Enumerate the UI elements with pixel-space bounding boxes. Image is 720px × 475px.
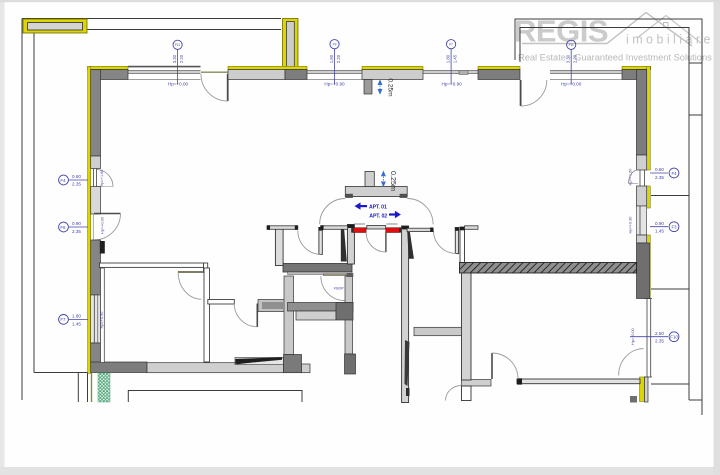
svg-text:2.20: 2.20 <box>336 54 341 63</box>
svg-text:F7: F7 <box>449 43 453 47</box>
svg-text:0.90: 0.90 <box>655 221 664 226</box>
svg-text:F10: F10 <box>670 335 678 340</box>
svg-text:FBOP: FBOP <box>334 287 344 291</box>
svg-text:1.80: 1.80 <box>329 54 334 63</box>
svg-text:Hp=+0.00: Hp=+0.00 <box>631 328 635 345</box>
svg-text:imobiliare: imobiliare <box>626 33 714 47</box>
svg-text:0.25m: 0.25m <box>389 171 398 191</box>
svg-text:3.30: 3.30 <box>172 54 177 63</box>
svg-text:1.80: 1.80 <box>446 54 451 63</box>
svg-text:2.50: 2.50 <box>655 331 664 336</box>
svg-text:F9: F9 <box>333 43 337 47</box>
svg-text:3.30: 3.30 <box>566 54 571 63</box>
svg-text:F3: F3 <box>671 225 677 230</box>
svg-text:2.35: 2.35 <box>655 175 664 180</box>
svg-text:1.45: 1.45 <box>72 321 81 326</box>
svg-text:Hp=+0.30: Hp=+0.30 <box>629 217 633 234</box>
svg-text:Hp=+0.00: Hp=+0.00 <box>101 217 105 234</box>
svg-text:APT. 02: APT. 02 <box>369 214 387 220</box>
svg-text:2.20: 2.20 <box>573 54 578 63</box>
svg-text:Hp=+0.90: Hp=+0.90 <box>100 312 104 329</box>
svg-text:0.90: 0.90 <box>72 221 81 226</box>
svg-text:Hp=+0.00: Hp=+0.00 <box>561 81 582 86</box>
svg-text:Hp=+0.90: Hp=+0.90 <box>442 81 463 86</box>
svg-text:0.25m: 0.25m <box>387 78 394 97</box>
svg-text:0.60: 0.60 <box>655 167 664 172</box>
svg-text:2.35: 2.35 <box>72 229 81 234</box>
svg-text:F11: F11 <box>569 43 574 47</box>
svg-text:Hp=+0.00: Hp=+0.00 <box>168 81 189 86</box>
svg-text:F6: F6 <box>60 225 66 230</box>
svg-text:F4: F4 <box>60 178 66 183</box>
svg-text:1.45: 1.45 <box>453 54 458 63</box>
svg-text:2.20: 2.20 <box>179 54 184 63</box>
svg-text:F7: F7 <box>60 317 66 322</box>
svg-text:APT. 01: APT. 01 <box>369 204 387 210</box>
svg-text:1.45: 1.45 <box>655 229 664 234</box>
svg-text:Hp=+1.60: Hp=+1.60 <box>100 170 104 187</box>
svg-text:1.80: 1.80 <box>72 314 81 319</box>
svg-text:Hp=+0.90: Hp=+0.90 <box>324 81 345 86</box>
svg-text:2.35: 2.35 <box>655 339 664 344</box>
svg-text:F11: F11 <box>175 43 180 47</box>
svg-text:2.35: 2.35 <box>72 181 81 186</box>
svg-text:Hp=+1.60: Hp=+1.60 <box>629 169 633 186</box>
svg-text:0.60: 0.60 <box>72 174 81 179</box>
svg-text:Real Estate - Guaranteed Inves: Real Estate - Guaranteed Investment Solu… <box>518 53 712 63</box>
svg-text:F4: F4 <box>671 171 677 176</box>
